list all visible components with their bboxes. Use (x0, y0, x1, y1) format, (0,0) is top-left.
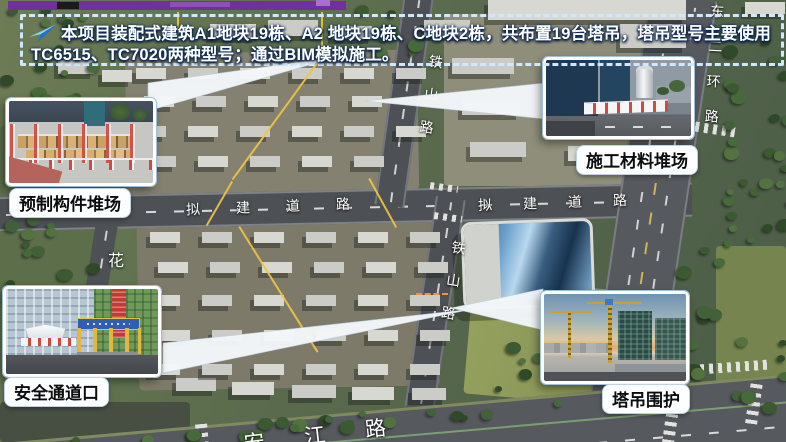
art-crane-mast (568, 311, 571, 358)
material-yard-photo (543, 57, 694, 139)
label-material-yard: 施工材料堆场 (576, 145, 698, 175)
label-precast-yard: 预制构件堆场 (9, 188, 131, 218)
art-far-city (544, 343, 612, 353)
slide-top-bar-dark-segment (57, 2, 79, 9)
art-glass-tower (618, 311, 652, 360)
slide-top-bar (8, 1, 346, 10)
art-teal-tower (84, 101, 106, 126)
banner-text-line2: TC6515、TC7020两种型号；通过BIM模拟施工。 (31, 41, 399, 65)
slide-top-bar-light-segment (170, 2, 230, 7)
art-tree (133, 109, 147, 121)
leader-beam-material (365, 83, 546, 119)
leader-beam-safety (163, 309, 473, 373)
art-crane-jib (587, 302, 641, 304)
art-buildings (9, 101, 153, 122)
art-striped-fence-row (584, 100, 668, 115)
art-tree (669, 80, 685, 92)
send-arrow-icon (29, 23, 59, 43)
slide-canvas: 铁山路 铁山路 拟建道路 拟建道路 东二环路 花 安江路 预制构件堆场 施 (0, 0, 786, 442)
safety-gate-photo (3, 286, 161, 377)
art-road (544, 372, 686, 381)
art-ground (6, 355, 158, 374)
art-silo (636, 66, 653, 98)
art-tree (110, 104, 130, 120)
art-striped-barriers (21, 338, 76, 346)
art-walkway-columns (77, 328, 141, 354)
label-crane-guard: 塔吊围护 (602, 384, 690, 414)
art-crane-mast (608, 302, 612, 363)
leader-beam-crane (451, 289, 543, 330)
slide-top-bar-tab (316, 0, 330, 6)
art-asphalt-dark (546, 121, 595, 136)
art-crane-cab (605, 299, 613, 305)
label-safety-gate: 安全通道口 (4, 377, 109, 407)
art-glass-tower (655, 318, 686, 360)
crane-guard-photo (541, 291, 689, 384)
info-banner: 本项目装配式建筑A1地块19栋、A2 地块19栋、C地块2栋，共布置19台塔吊，… (20, 14, 784, 66)
precast-yard-photo (6, 98, 156, 186)
